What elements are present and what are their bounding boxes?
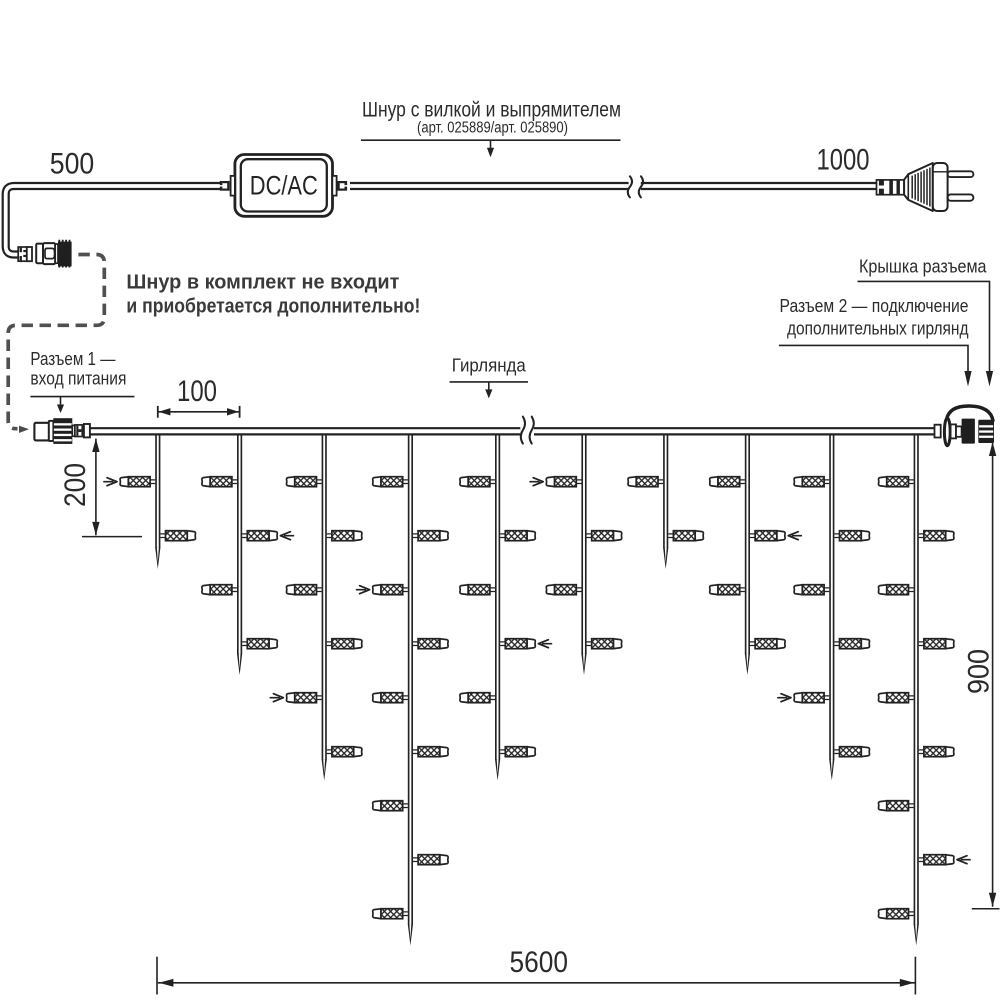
svg-text:дополнительных гирлянд: дополнительных гирлянд <box>787 318 969 338</box>
svg-text:вход питания: вход питания <box>30 368 126 388</box>
svg-text:1000: 1000 <box>817 144 870 177</box>
svg-text:(арт. 025889/арт. 025890): (арт. 025889/арт. 025890) <box>417 120 568 137</box>
svg-text:Шнур в комплект не входит: Шнур в комплект не входит <box>126 271 399 294</box>
svg-text:DC/AC: DC/AC <box>250 170 318 200</box>
svg-text:Разъем 1 —: Разъем 1 — <box>30 349 115 369</box>
svg-text:Разъем 2 — подключение: Разъем 2 — подключение <box>780 296 969 316</box>
svg-text:200: 200 <box>59 463 92 507</box>
svg-text:Гирлянда: Гирлянда <box>452 355 527 375</box>
svg-text:Шнур с вилкой и выпрямителем: Шнур с вилкой и выпрямителем <box>362 98 621 122</box>
svg-text:900: 900 <box>962 649 995 694</box>
svg-text:100: 100 <box>177 375 217 408</box>
svg-text:500: 500 <box>50 148 95 181</box>
svg-text:Крышка разъема: Крышка разъема <box>859 256 987 276</box>
svg-text:и приобретается дополнительно!: и приобретается дополнительно! <box>126 294 420 317</box>
svg-text:5600: 5600 <box>510 946 569 979</box>
